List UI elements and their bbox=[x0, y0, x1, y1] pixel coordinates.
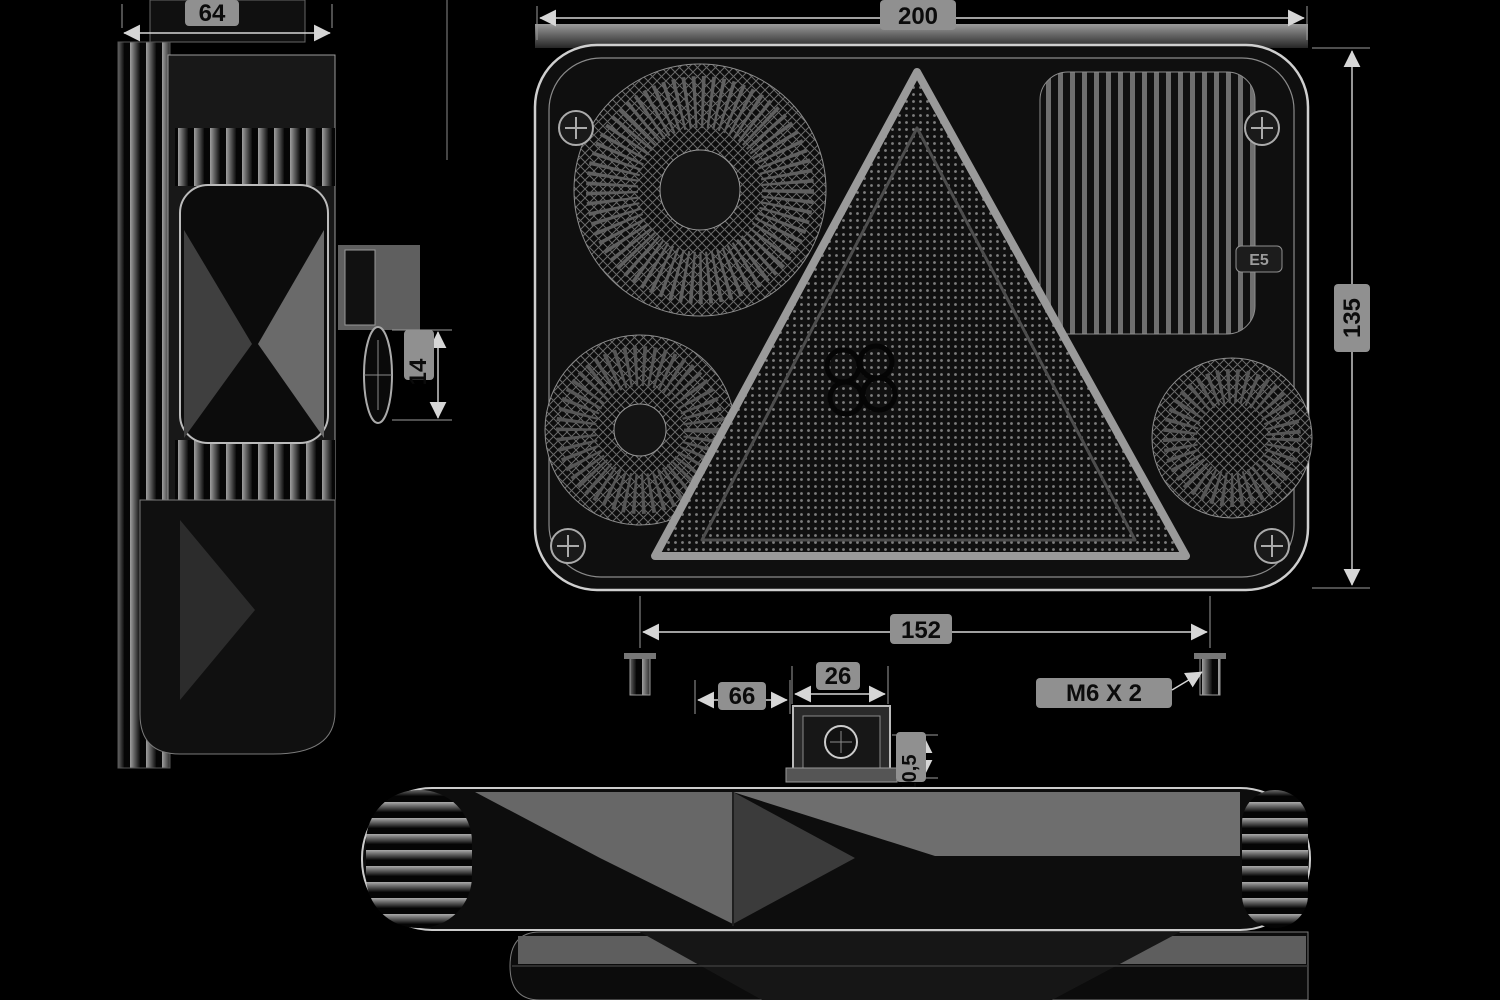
thread-spec-text: M6 X 2 bbox=[1066, 680, 1142, 707]
lamp-engineering-drawing: 14 64 bbox=[0, 0, 1500, 1000]
bottom-edge-strip bbox=[510, 932, 1308, 1000]
mounting-detail: 152 M6 X 2 66 26 bbox=[624, 596, 1226, 793]
bottom-view bbox=[362, 788, 1310, 1000]
dim-connector-height: 10,5 bbox=[892, 732, 938, 793]
dim-front-height: 135 bbox=[1312, 48, 1370, 588]
approval-mark-text: E5 bbox=[1249, 252, 1269, 269]
approval-mark: E5 bbox=[1236, 246, 1282, 272]
dim-connector-width: 26 bbox=[792, 662, 888, 704]
dim-text-front-height: 135 bbox=[1339, 298, 1366, 338]
side-view: 14 64 bbox=[118, 0, 452, 768]
technical-drawing-canvas: 14 64 bbox=[0, 0, 1500, 1000]
dim-text-stud-spacing: 152 bbox=[901, 617, 941, 644]
tail-light-panel bbox=[1040, 72, 1255, 334]
dim-offset: 66 bbox=[695, 680, 790, 714]
screw-top-right bbox=[1245, 111, 1279, 145]
side-view-upper-rib-band bbox=[175, 128, 335, 186]
side-view-lower-rib-band bbox=[175, 440, 335, 500]
connector-block bbox=[786, 706, 897, 782]
stud-left-washer bbox=[624, 653, 656, 659]
reverse-optic bbox=[1152, 358, 1312, 518]
dim-text-connector-width: 26 bbox=[825, 663, 852, 690]
screw-top-left bbox=[559, 111, 593, 145]
bottom-view-left-ribs bbox=[366, 790, 472, 928]
stud-right-washer bbox=[1194, 653, 1226, 659]
stud-right bbox=[1200, 655, 1220, 695]
leader-line bbox=[1172, 672, 1202, 690]
stud-left bbox=[630, 655, 650, 695]
optic-center bbox=[614, 404, 666, 456]
indicator-optic bbox=[574, 64, 826, 316]
bottom-view-right-ribs bbox=[1242, 790, 1308, 928]
dim-text-front-width: 200 bbox=[898, 3, 938, 30]
screw-bottom-left bbox=[551, 529, 585, 563]
dim-text-stud-protrusion: 14 bbox=[405, 358, 432, 385]
optic-center bbox=[660, 150, 740, 230]
dim-text-side-depth: 64 bbox=[199, 0, 226, 27]
dim-text-offset: 66 bbox=[729, 683, 756, 710]
dim-stud-protrusion: 14 bbox=[392, 330, 452, 420]
front-view: E5 200 135 bbox=[535, 0, 1370, 590]
thread-spec: M6 X 2 bbox=[1036, 672, 1202, 708]
screw-bottom-right bbox=[1255, 529, 1289, 563]
stud-bracket bbox=[345, 250, 375, 325]
connector-flange bbox=[786, 768, 897, 782]
dim-stud-spacing: 152 bbox=[640, 596, 1210, 648]
